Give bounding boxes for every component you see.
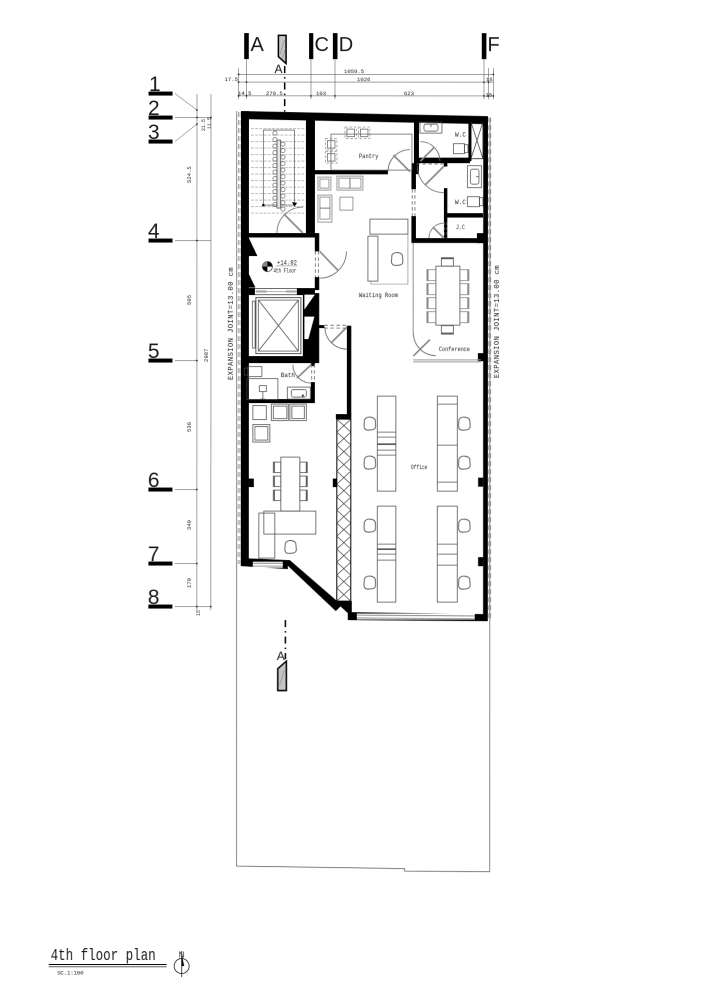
svg-text:C: C xyxy=(314,34,328,56)
svg-text:SC.1:100: SC.1:100 xyxy=(57,970,84,977)
svg-text:340: 340 xyxy=(186,519,193,530)
svg-text:A: A xyxy=(277,649,285,663)
svg-text:14.5: 14.5 xyxy=(238,90,251,97)
svg-text:270.5: 270.5 xyxy=(266,90,283,97)
svg-text:Pantry: Pantry xyxy=(359,153,379,161)
svg-text:530: 530 xyxy=(186,421,193,432)
svg-text:Waiting Room: Waiting Room xyxy=(359,292,398,300)
svg-text:A: A xyxy=(250,34,264,56)
svg-text:A: A xyxy=(274,62,282,76)
svg-text:Bath: Bath xyxy=(281,372,295,380)
svg-text:170: 170 xyxy=(186,577,193,588)
svg-text:11.5: 11.5 xyxy=(207,117,213,129)
svg-text:F: F xyxy=(487,34,499,56)
svg-text:524.5: 524.5 xyxy=(186,166,193,183)
svg-text:EXPANSION JOINT=13.00 cm: EXPANSION JOINT=13.00 cm xyxy=(494,265,502,378)
svg-text:Office: Office xyxy=(411,464,428,472)
svg-text:623: 623 xyxy=(404,90,414,97)
svg-text:4th Floor: 4th Floor xyxy=(273,267,296,274)
svg-text:2987: 2987 xyxy=(203,349,210,362)
svg-text:4th floor plan: 4th floor plan xyxy=(51,946,156,965)
svg-text:D: D xyxy=(339,34,353,56)
svg-text:J.C: J.C xyxy=(456,224,465,232)
svg-text:W.C: W.C xyxy=(455,132,466,140)
svg-text:505: 505 xyxy=(186,295,193,305)
svg-text:EXPANSION JOINT=13.00 cm: EXPANSION JOINT=13.00 cm xyxy=(228,267,236,380)
svg-text:16: 16 xyxy=(486,76,493,83)
svg-text:17.5: 17.5 xyxy=(224,76,237,83)
svg-text:15: 15 xyxy=(485,91,492,98)
svg-text:15: 15 xyxy=(196,610,202,616)
svg-text:103: 103 xyxy=(316,90,326,97)
svg-text:1026: 1026 xyxy=(357,76,370,83)
svg-text:N: N xyxy=(179,951,185,960)
svg-text:W.C: W.C xyxy=(455,199,466,207)
svg-text:1059.5: 1059.5 xyxy=(344,68,364,75)
svg-text:Conference: Conference xyxy=(439,346,470,354)
svg-text:+14.82: +14.82 xyxy=(277,260,297,267)
